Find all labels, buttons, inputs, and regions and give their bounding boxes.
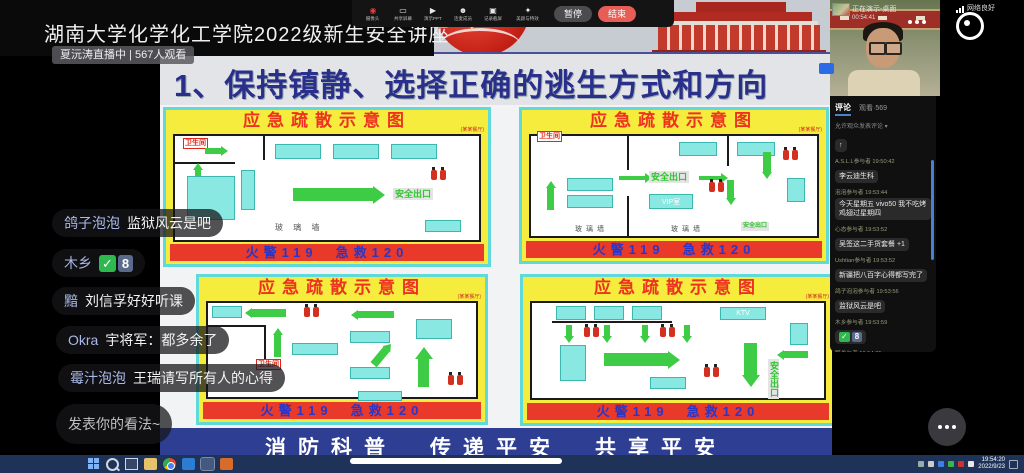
record-icon: ▣ [489, 6, 497, 15]
ppt-icon: ▶ [430, 6, 436, 15]
danmaku-bubble: 霉汁泡泡 王瑞请写所有人的心得 [58, 364, 285, 392]
comment-item: 鸽子泡泡参与者 19:53:56 监狱风云是吧 [835, 286, 931, 313]
active-app-icon[interactable] [201, 458, 214, 470]
share-screen-button[interactable]: ▭ 共享屏幕 [388, 6, 418, 22]
beauty-effects-button[interactable]: ✦ 美颜与特效 [508, 6, 548, 22]
camera-icon: ◉ [370, 6, 377, 15]
taskbar-clock[interactable]: 19:54:20 2022/9/23 [978, 457, 1005, 471]
comment-item: 黯参与者 19:54:05 刘信孚好好听课 [835, 348, 931, 352]
diagram-title: 应急疏散示意图 [166, 110, 488, 132]
comment-input[interactable]: 发表你的看法~ [56, 404, 172, 444]
danmaku-bubble: 黯 刘信孚好好听课 [52, 287, 195, 315]
app-icon[interactable] [182, 458, 195, 470]
evacuation-diagram-4: 应急疏散示意图 (某某餐厅) KTV [520, 274, 832, 426]
evacuation-diagram-3: 应急疏散示意图 (某某餐厅) 卫生间 [196, 274, 488, 425]
comment-item: A.S.L.L参与者 19:50:42 李云迪生科 [835, 156, 931, 183]
building-graphic [696, 2, 786, 12]
camera-button[interactable]: ◉ 摄像头 [358, 6, 388, 22]
ellipsis-icon [938, 425, 956, 429]
screen: ★ 1、保持镇静、选择正确的逃生方式和方向 应急疏散示意图 (某某餐厅) 卫生间 [0, 0, 1024, 473]
magic-wand-icon: ✦ [525, 6, 532, 15]
end-stream-button[interactable]: 结束 [598, 6, 636, 22]
browser-icon[interactable] [163, 458, 176, 470]
slide-footer-text: 消防科普 传递平安 共享平安 [265, 432, 727, 455]
system-tray[interactable]: 19:54:20 2022/9/23 [918, 457, 1018, 471]
floor-plan: 卫生间 VIP室 安全出口 玻璃墙 [529, 134, 819, 238]
comment-reaction: ↑ [835, 134, 931, 152]
floating-more-button[interactable] [928, 408, 966, 446]
screen-share-icon: ▭ [399, 6, 407, 15]
danmaku-bubble: 鸽子泡泡 监狱风云是吧 [52, 209, 223, 237]
hotline: 火警119 急救120 [170, 244, 484, 261]
sharing-label: 正在演示-桌面 [852, 4, 896, 14]
present-ppt-button[interactable]: ▶ 演示PPT [418, 6, 448, 22]
comment-item: Ushtian参与者 19:53:52 新疆把八百字心得都写完了 [835, 255, 931, 282]
more-options-button[interactable] [908, 20, 926, 24]
comments-scrollbar[interactable] [931, 160, 934, 260]
diagram-subtitle: (某某餐厅) [461, 126, 484, 133]
stream-duration: 00:54:41 [852, 15, 875, 21]
notification-icon [1009, 460, 1018, 469]
member-icon: ☻ [459, 6, 467, 15]
record-screenshot-button[interactable]: ▣ 记录截屏 [478, 6, 508, 22]
floor-plan: KTV 安全出口 [530, 301, 826, 400]
check-emoji: ✓ [839, 332, 850, 342]
tab-watchers[interactable]: 观看·569 [859, 103, 887, 113]
start-button[interactable] [88, 458, 100, 470]
comments-panel: 评论 观看·569 允许观众发表评论 ▾ ↑ A.S.L.L参与者 19:50:… [830, 96, 936, 352]
slide-title: 1、保持镇静、选择正确的逃生方式和方向 [174, 60, 824, 105]
signal-icon [956, 6, 964, 13]
task-view-icon[interactable] [125, 458, 138, 470]
office-app-icon[interactable] [220, 458, 233, 470]
number-emoji: 8 [852, 332, 862, 342]
slide-footer-bar: 消防科普 传递平安 共享平安 [160, 428, 832, 455]
comment-filter-dropdown[interactable]: 允许观众发表评论 ▾ [835, 121, 931, 130]
record-toggle-button[interactable] [956, 12, 984, 40]
glasses [869, 42, 886, 55]
comment-item: 木乡参与者 19:53:59 ✓8 [835, 317, 931, 344]
danmaku-bubble: 木乡 ✓8 [52, 249, 145, 277]
comment-item: 泡泡参与者 19:53:44 今天星期五 vivo50 我不吃烤鸡翅过星期四 [835, 187, 931, 220]
pause-stream-button[interactable]: 暂停 [554, 6, 592, 22]
host-badge [819, 63, 834, 74]
search-icon[interactable] [106, 458, 119, 471]
comment-item: 心态参与者 19:53:52 吴签这二手货套餐 +1 [835, 224, 931, 251]
tab-comments[interactable]: 评论 [835, 102, 851, 116]
evacuation-diagram-2: 应急疏散示意图 (某某餐厅) 卫生间 VIP室 安全出口 [519, 107, 829, 264]
evacuation-diagram-1: 应急疏散示意图 (某某餐厅) 卫生间 安全出口 玻 璃 墙 火警1 [163, 107, 491, 267]
network-status: 网络良好 [956, 3, 995, 13]
danmaku-bubble: Okra 宇将军：都多余了 [56, 326, 229, 354]
live-status-badge: 夏沅涛直播中 | 567人观看 [52, 46, 194, 64]
home-indicator[interactable] [350, 458, 562, 464]
check-emoji: ✓ [99, 255, 116, 272]
stream-toolbar: ◉ 摄像头 ▭ 共享屏幕 ▶ 演示PPT ☻ 连麦成员 ▣ 记录截屏 ✦ 美颜与… [352, 0, 674, 27]
members-button[interactable]: ☻ 连麦成员 [448, 6, 478, 22]
sharing-thumbnail [832, 3, 850, 16]
number-emoji: 8 [118, 255, 133, 272]
file-explorer-icon[interactable] [144, 458, 157, 470]
